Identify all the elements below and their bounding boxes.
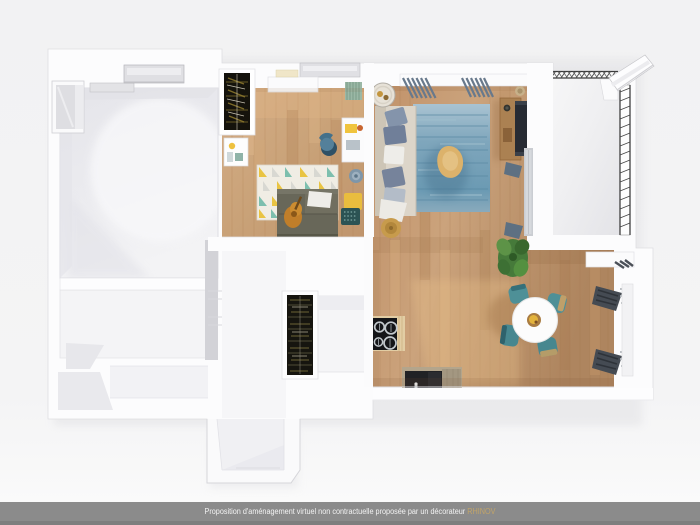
svg-text:Proposition d'aménagement virt: Proposition d'aménagement virtuel non co… <box>205 507 497 516</box>
